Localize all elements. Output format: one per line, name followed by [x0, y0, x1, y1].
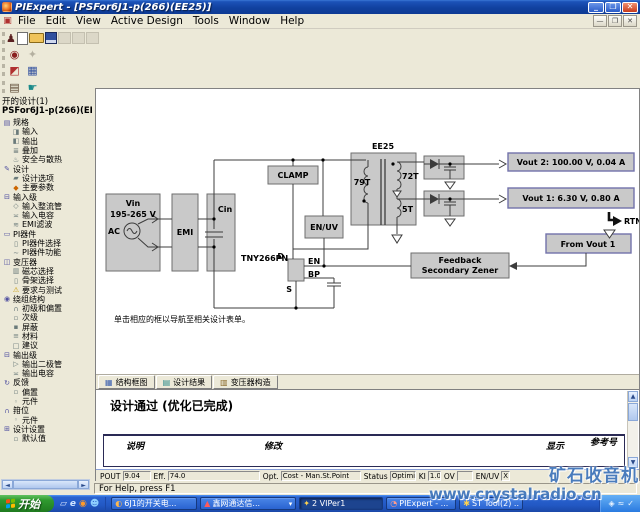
scroll-up-icon[interactable]: ▲ — [628, 391, 638, 402]
core-label: EE25 — [372, 142, 394, 151]
task-button[interactable]: 2 VIPer1 — [299, 497, 383, 510]
start-label: 开始 — [18, 496, 40, 512]
status-field-label: Eff. — [154, 472, 166, 481]
mdi-close-button[interactable]: ✕ — [623, 15, 637, 27]
tree-item[interactable]: ≡ 材料 — [0, 332, 92, 341]
ac-label: AC — [108, 227, 120, 236]
enuv-label: EN/UV — [310, 223, 339, 232]
vin-range-label: 195-265 V — [110, 210, 157, 219]
menu-item[interactable]: Tools — [188, 15, 224, 27]
tree-item[interactable]: ▪ 屏蔽 — [0, 323, 92, 332]
status-field-value: 74.0 — [168, 471, 260, 481]
status-field: OV — [444, 471, 473, 481]
status-field-label: POUT — [100, 472, 121, 481]
vin-label: Vin — [126, 199, 141, 208]
toolbar-button[interactable] — [6, 80, 23, 95]
rtn-arrow-icon — [609, 212, 613, 220]
view-tab[interactable]: 设计结果 — [156, 375, 213, 389]
tab-icon — [220, 378, 228, 387]
quick-launch-bar — [54, 497, 106, 510]
tree-item-icon: ≡ — [12, 332, 20, 340]
design-tree-panel: 开的设计(1) PSFor6J1-p(266)(EE2 ▤ 规格 ◨ 输入 ◧ … — [0, 95, 92, 492]
toolbar-button[interactable] — [6, 63, 23, 78]
tree-item-icon: ⊞ — [3, 425, 11, 433]
tree-item-icon: ∼ — [12, 249, 20, 257]
toolbar-button[interactable] — [45, 31, 57, 46]
sec1-turns-label: 72T — [402, 172, 419, 181]
toolbar-button[interactable] — [6, 47, 23, 62]
menu-bar: ▣ FileEditViewActive DesignToolsWindowHe… — [0, 14, 640, 29]
tree-item[interactable]: ▤ 规格 — [0, 118, 92, 127]
minimize-button[interactable]: _ — [588, 2, 604, 13]
toolbar-file — [0, 30, 95, 46]
menu-item[interactable]: File — [13, 15, 41, 27]
watermark-url: www.crystalradio.cn — [429, 485, 602, 503]
status-field: EN/UV X — [476, 471, 510, 481]
mdi-restore-button[interactable]: ❐ — [608, 15, 622, 27]
toolbar-button[interactable] — [17, 31, 28, 46]
tree-item-icon: ≋ — [12, 221, 20, 229]
tree-item-icon: ▪ — [12, 323, 20, 331]
tree-horizontal-scrollbar[interactable]: ◄ ► — [1, 479, 90, 490]
tree-item-icon: ≍ — [12, 212, 20, 220]
column-reference: 参考号 — [590, 439, 624, 448]
mdi-buttons: — ❐ ✕ — [593, 15, 640, 27]
pin-s-label: S — [286, 285, 292, 294]
toolbar-button[interactable] — [6, 31, 16, 46]
tab-label: 设计结果 — [173, 377, 205, 388]
status-field-label: EN/UV — [476, 472, 500, 481]
design-results-pane: 设计通过 (优化已完成) 说明 修改 显示 参考号 ▲ ▼ — [96, 389, 639, 469]
status-field: Opt. Cost - Man.St.Point — [263, 471, 361, 481]
tree-item[interactable]: ◨ 输入 — [0, 127, 92, 136]
task-button-icon — [390, 499, 397, 508]
tray-icon[interactable]: ◈ — [608, 499, 614, 508]
tree-item-icon: ▫ — [12, 435, 20, 443]
menu-item[interactable]: Edit — [41, 15, 71, 27]
toolbar-button[interactable] — [86, 31, 99, 46]
emi-label: EMI — [177, 228, 193, 237]
scroll-right-icon[interactable]: ► — [78, 480, 89, 489]
task-button-icon — [204, 499, 210, 508]
sec2-turns-label: 5T — [402, 205, 414, 214]
from-vout1-label: From Vout 1 — [561, 240, 616, 249]
tree-item-icon: ◉ — [3, 295, 11, 303]
toolbar-button[interactable] — [24, 80, 41, 95]
view-tab[interactable]: 结构框图 — [98, 375, 155, 389]
tree-item-icon: ∩ — [12, 305, 20, 313]
tree-item[interactable]: ∩ 箝位 — [0, 406, 92, 415]
toolbar-design — [0, 62, 95, 78]
tree-item-icon: ▫ — [12, 388, 20, 396]
toolbar-button[interactable] — [24, 63, 41, 78]
status-field-value: 9.04 — [123, 471, 151, 481]
tab-label: 结构框图 — [116, 377, 148, 388]
scroll-left-icon[interactable]: ◄ — [2, 480, 13, 489]
close-button[interactable]: ✕ — [622, 2, 638, 13]
quick-launch-icon[interactable] — [60, 499, 67, 509]
status-field: Status Optimization done — [364, 471, 416, 481]
cin-label: Cin — [218, 205, 233, 214]
tree-item[interactable]: ◧ 输出 — [0, 137, 92, 146]
device-box[interactable] — [288, 259, 304, 281]
menu-item[interactable]: Active Design — [106, 15, 188, 27]
tree-item-icon: ◧ — [12, 137, 20, 145]
tree-item-icon: ▯ — [12, 277, 20, 285]
status-field-value — [457, 471, 473, 481]
status-field: Eff. 74.0 — [154, 471, 260, 481]
status-field-value: X — [501, 471, 510, 481]
tree-item-icon: ∩ — [3, 407, 11, 415]
system-tray: ◈≈✓ — [599, 495, 640, 512]
restore-button[interactable]: ❐ — [605, 2, 621, 13]
status-field-label: KI — [419, 472, 426, 481]
tree-item-icon: ◦ — [12, 398, 20, 406]
task-button-icon — [115, 499, 122, 508]
tree-item-icon: ≣ — [12, 147, 20, 155]
tree-item-icon: ▯ — [12, 240, 20, 248]
quick-launch-icon[interactable] — [90, 499, 99, 509]
tab-label: 变压器构造 — [231, 377, 271, 388]
transformer-box[interactable] — [351, 153, 416, 225]
tree-item-icon: ≍ — [12, 370, 20, 378]
document-icon[interactable]: ▣ — [2, 16, 13, 27]
status-field-value: 1.00 — [428, 471, 441, 481]
tree-item[interactable]: ▫ 偏置 — [0, 388, 92, 397]
rtn-label: RTN — [624, 217, 639, 226]
tree-item-icon: ▷ — [12, 360, 20, 368]
results-scrollbar[interactable]: ▲ ▼ — [627, 391, 638, 468]
clamp-label: CLAMP — [278, 171, 309, 180]
toolbar-view — [0, 79, 95, 95]
toolbar-button[interactable] — [24, 47, 41, 62]
start-button[interactable]: 开始 — [0, 495, 54, 512]
menu-item[interactable]: Window — [224, 15, 275, 27]
task-button-icon — [303, 499, 310, 508]
tree-header: 开的设计(1) — [0, 95, 92, 106]
tab-icon — [105, 378, 113, 387]
tree-item-icon: ⊟ — [3, 193, 11, 201]
tree-item-icon: ▫ — [12, 314, 20, 322]
vout1-label: Vout 1: 6.30 V, 0.80 A — [522, 194, 620, 203]
tree-item-icon: ◫ — [3, 258, 11, 266]
title-bar[interactable]: PIExpert - [PSFor6J1-p(266)(EE25)] _ ❐ ✕ — [0, 0, 640, 14]
tab-icon — [163, 378, 171, 387]
tree-item-icon: ▭ — [3, 230, 11, 238]
design-pass-heading: 设计通过 (优化已完成) — [110, 397, 233, 414]
task-button-label: 6J1的开关电... — [124, 498, 176, 509]
status-field-label: Opt. — [263, 472, 279, 481]
task-button[interactable]: 6J1的开关电... — [111, 497, 197, 510]
pin-d-label: D — [277, 252, 284, 261]
results-table-header: 说明 修改 显示 参考号 — [103, 434, 625, 467]
tray-icon[interactable]: ≈ — [618, 499, 625, 508]
status-field-label: Status — [364, 472, 388, 481]
status-field-label: OV — [444, 472, 455, 481]
tree-item-icon: ↻ — [3, 379, 11, 387]
menu-item[interactable]: Help — [275, 15, 309, 27]
tree-item[interactable]: ▫ 次级 — [0, 313, 92, 322]
view-tabstrip: 结构框图 设计结果 变压器构造 — [96, 375, 639, 389]
tree-item-label: 默认值 — [22, 433, 46, 444]
watermark-text: 矿石收音机 — [549, 461, 639, 486]
primary-turns-label: 79T — [354, 178, 371, 187]
tree-item-icon: ⊟ — [3, 351, 11, 359]
feedback-label-2: Secondary Zener — [422, 266, 499, 275]
task-button[interactable]: 鑫网通达信... — [200, 497, 296, 510]
window-title: PIExpert - [PSFor6J1-p(266)(EE25)] — [15, 2, 211, 13]
vout2-label: Vout 2: 100.00 V, 0.04 A — [517, 158, 626, 167]
tree-item-icon: ♨ — [12, 156, 20, 164]
menu-items: FileEditViewActive DesignToolsWindowHelp — [13, 15, 309, 27]
toolbar-button[interactable] — [29, 31, 44, 46]
toolbar-optimize — [0, 46, 95, 62]
status-field: POUT 9.04 — [100, 471, 151, 481]
column-modify: 修改 — [264, 439, 546, 452]
column-description: 说明 — [104, 439, 264, 452]
pin-en-label: EN — [308, 257, 320, 266]
task-button-label: 2 VIPer1 — [312, 499, 345, 508]
quick-launch-icon[interactable] — [79, 499, 87, 509]
scrollbar-thumb[interactable] — [628, 403, 638, 421]
task-button-label: 鑫网通达信... — [212, 498, 260, 509]
pin-bp-label: BP — [308, 270, 320, 279]
diagram-note: 单击相应的框以导航至相关设计表单。 — [114, 314, 250, 324]
tree-item-icon: ⚠ — [12, 286, 20, 294]
toolbar-button[interactable] — [72, 31, 85, 46]
tree-item-icon: ◨ — [12, 128, 20, 136]
scrollbar-thumb[interactable] — [13, 480, 78, 489]
main-client-area: Vin 195-265 V AC EMI Cin CLAMP EE25 79T … — [95, 88, 640, 481]
column-display: 显示 — [546, 439, 590, 452]
tree-item-icon: ◆ — [12, 184, 20, 192]
app-icon — [2, 2, 12, 12]
tree-item-icon: ▤ — [3, 119, 11, 127]
menu-item[interactable]: View — [71, 15, 106, 27]
tree-item[interactable]: ▫ 默认值 — [0, 434, 92, 443]
tree-item[interactable]: ⊞ 设计设置 — [0, 425, 92, 434]
status-field-value: Cost - Man.St.Point — [281, 471, 361, 481]
status-field: KI 1.00 — [419, 471, 441, 481]
schematic-svg: Vin 195-265 V AC EMI Cin CLAMP EE25 79T … — [96, 89, 639, 375]
tree-item-icon: ◇ — [12, 202, 20, 210]
tree-item-icon: ▰ — [12, 174, 20, 182]
tree-item-icon: ✎ — [3, 165, 11, 173]
tree-item[interactable]: ↻ 反馈 — [0, 378, 92, 387]
toolbar-button[interactable] — [58, 31, 71, 46]
caption-buttons: _ ❐ ✕ — [588, 2, 640, 13]
tree-item-icon: ▥ — [12, 267, 20, 275]
tree-item[interactable]: ∩ 初级和偏置 — [0, 304, 92, 313]
tree-item-icon: ◦ — [12, 416, 20, 424]
tree-item-icon: □ — [12, 342, 20, 350]
status-field-value: Optimization done — [390, 471, 416, 481]
windows-flag-icon — [6, 499, 15, 509]
view-tab[interactable]: 变压器构造 — [213, 375, 278, 389]
tray-icon[interactable]: ✓ — [627, 499, 634, 508]
mdi-minimize-button[interactable]: — — [593, 15, 607, 27]
feedback-label-1: Feedback — [439, 256, 483, 265]
quick-launch-icon[interactable] — [70, 499, 76, 509]
tree-items: ▤ 规格 ◨ 输入 ◧ 输出 ≣ 叠加 ♨ 安全与散热 — [0, 118, 92, 443]
schematic-diagram: Vin 195-265 V AC EMI Cin CLAMP EE25 79T … — [96, 89, 639, 375]
